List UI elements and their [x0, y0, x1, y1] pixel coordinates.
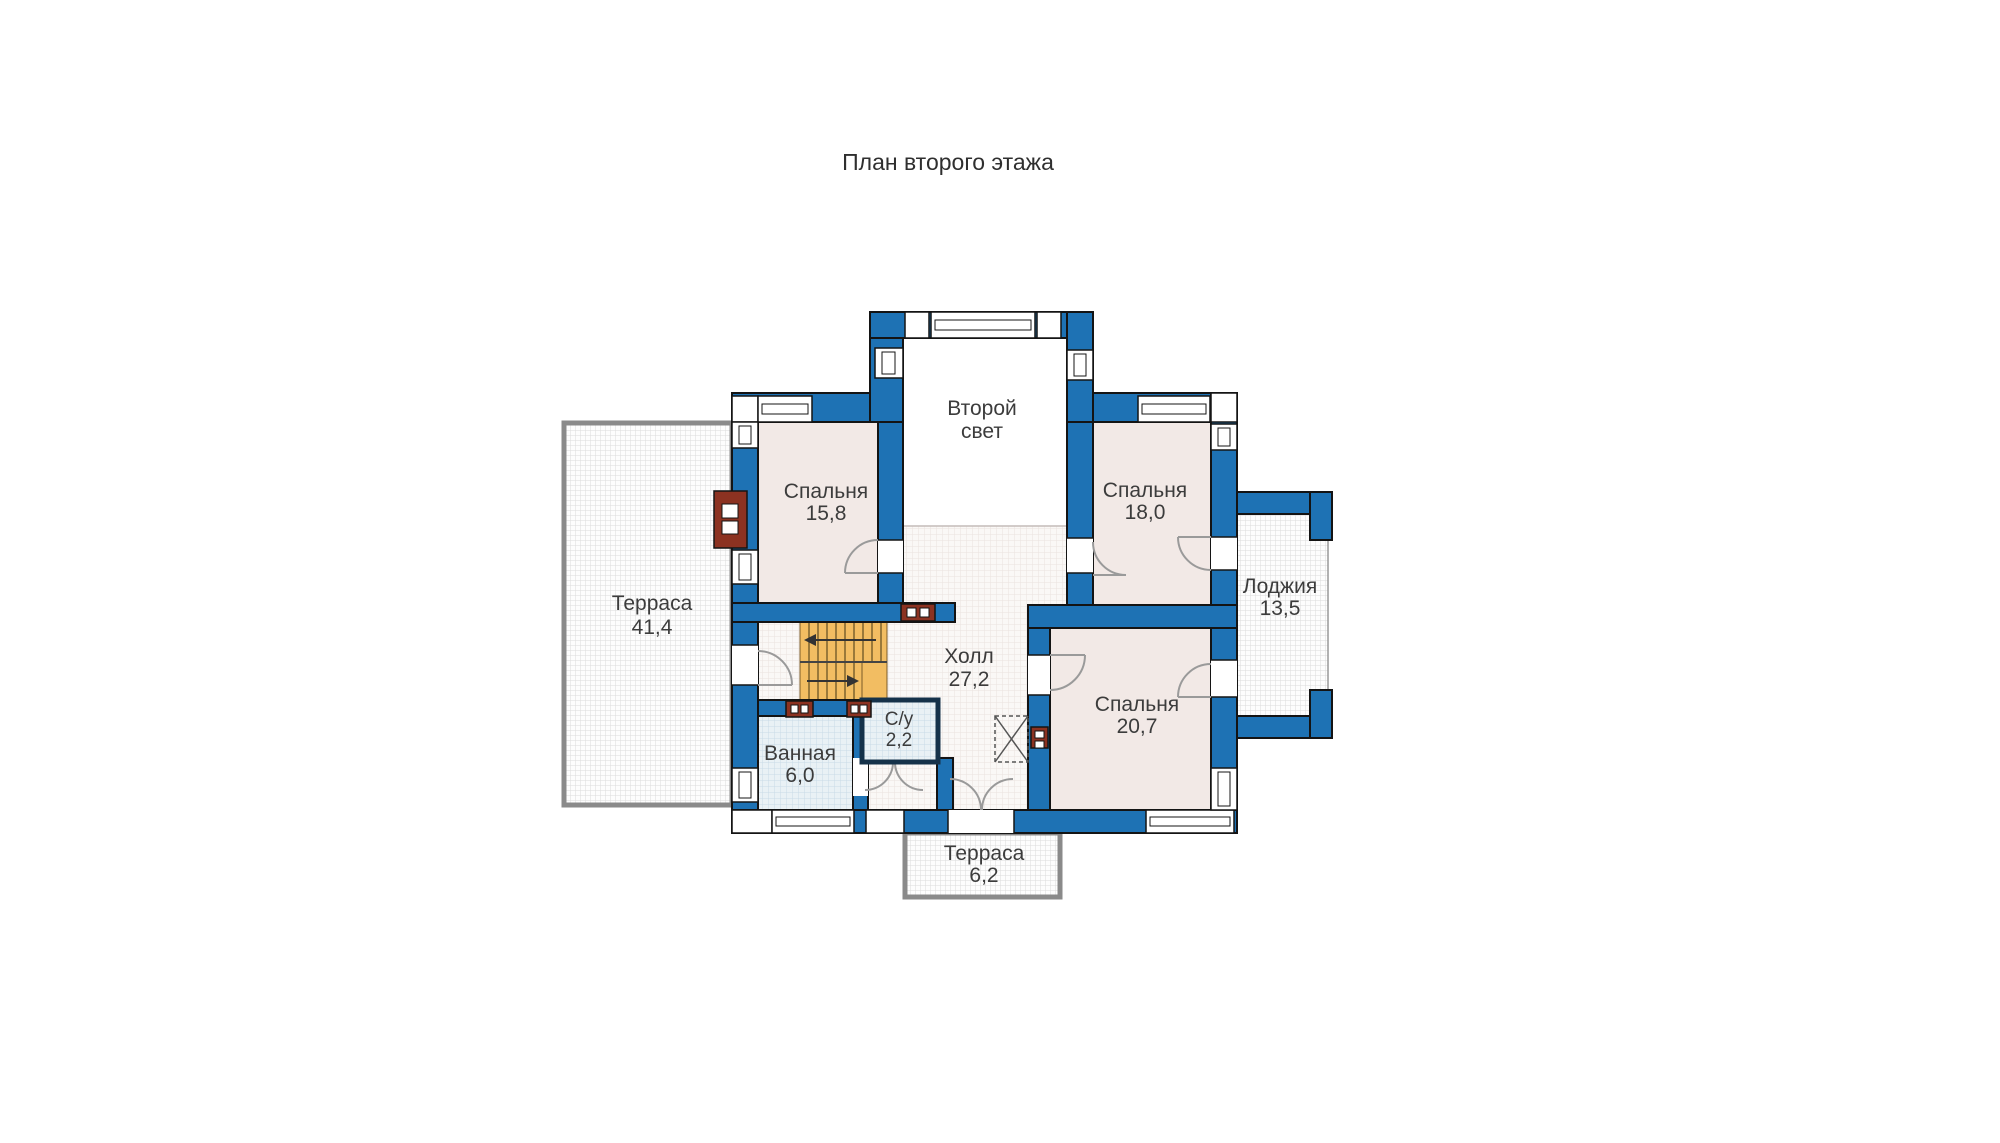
chimney: [714, 491, 747, 548]
loggia-rail-bottom-corner: [1310, 690, 1332, 738]
corner-block-ne: [1211, 393, 1237, 422]
loggia-rail-top-corner: [1310, 492, 1332, 540]
wall-bedroom1-right: [878, 422, 903, 622]
bedroom3-area: 20,7: [1117, 715, 1158, 738]
loggia-area: 13,5: [1260, 597, 1301, 620]
bedroom2-label: Спальня: [1103, 479, 1187, 502]
staircase: [800, 622, 887, 700]
hall-label: Холл: [944, 645, 994, 668]
door-gap-bedroom2-loggia: [1211, 537, 1237, 570]
terrace-left-area: 41,4: [632, 616, 673, 639]
page-title: План второго этажа: [842, 149, 1054, 175]
corner-block-nw: [732, 396, 758, 422]
terrace-left-label: Терраса: [612, 592, 693, 615]
bathroom-label: Ванная: [764, 742, 836, 765]
floor-plan-page: План второго этажа: [0, 0, 2000, 1143]
door-gap-bedroom3: [1028, 655, 1050, 695]
radiator-1: [786, 701, 813, 717]
door-gap-terrace: [732, 645, 758, 685]
radiator-3: [901, 604, 935, 621]
bedroom2-area: 18,0: [1125, 501, 1166, 524]
wall-vestibule: [937, 758, 953, 810]
loggia-label: Лоджия: [1243, 575, 1317, 598]
wc-area: 2,2: [886, 730, 912, 751]
second-light-label: Второй: [947, 397, 1016, 420]
door-gap-bedroom2: [1067, 538, 1093, 573]
floor-plan-svg: План второго этажа: [0, 0, 2000, 1143]
wall-hall-bedroom3: [1028, 605, 1050, 810]
wall-hall-bedroom2: [1067, 422, 1093, 605]
wall-bedroom2-bedroom3: [1028, 605, 1237, 628]
door-gap-bedroom1: [878, 540, 903, 573]
bedroom3-label: Спальня: [1095, 693, 1179, 716]
terrace-bottom-area: 6,2: [969, 864, 998, 887]
hall-area: 27,2: [949, 668, 990, 691]
bathroom-area: 6,0: [785, 764, 814, 787]
corner-block-sw: [732, 810, 772, 833]
second-light-label-2: свет: [961, 420, 1003, 443]
bedroom1-label: Спальня: [784, 480, 868, 503]
wc-label: С/у: [885, 709, 914, 730]
window-south-2: [866, 810, 904, 833]
door-gap-french: [948, 810, 1014, 833]
door-gap-bedroom3-loggia: [1211, 660, 1237, 697]
bedroom1-area: 15,8: [806, 502, 847, 525]
terrace-bottom-label: Терраса: [944, 842, 1025, 865]
corner-block-bay-right: [1037, 312, 1061, 338]
corner-block-bay-left: [905, 312, 929, 338]
